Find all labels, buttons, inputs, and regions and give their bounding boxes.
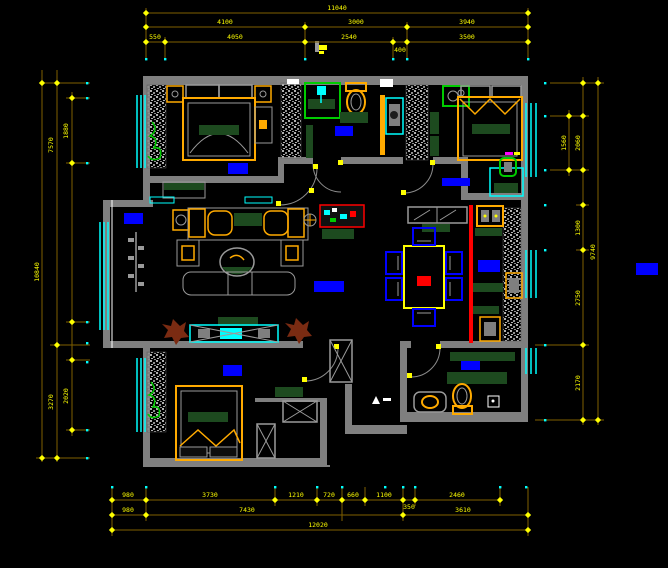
dim-text: 1880 bbox=[62, 123, 70, 139]
dim-witness-dot bbox=[86, 342, 88, 344]
dim-witness-dot bbox=[544, 249, 546, 251]
dim-text: 3270 bbox=[47, 394, 55, 410]
dim-witness-dot bbox=[406, 58, 408, 60]
dim-witness-dot bbox=[145, 58, 147, 60]
bath2-drain-dot bbox=[492, 400, 495, 403]
dim-witness-dot bbox=[414, 486, 416, 488]
dim-text: 350 bbox=[403, 503, 415, 511]
section-flag-tail bbox=[319, 51, 324, 54]
dim-witness-dot bbox=[544, 82, 546, 84]
door-hinge bbox=[407, 373, 412, 378]
dim-text: 2060 bbox=[574, 135, 582, 151]
dim-witness-dot bbox=[544, 115, 546, 117]
dim-text: 11040 bbox=[327, 4, 347, 12]
cad-viewport[interactable]: 1104041003000394055040502540400350010840… bbox=[0, 0, 668, 568]
dim-text: 1210 bbox=[288, 491, 304, 499]
decor-pixel-white bbox=[332, 208, 337, 212]
decor-pixel-cyan1 bbox=[324, 210, 330, 215]
living-plant-leaf bbox=[138, 264, 144, 268]
room-label-bedroom3 bbox=[223, 365, 242, 376]
living-plant-leaf bbox=[138, 282, 144, 286]
kitchen-appliance-body bbox=[484, 322, 496, 336]
dim-text: 4050 bbox=[227, 33, 243, 41]
door-hinge bbox=[309, 188, 314, 193]
bed3-pillow bbox=[188, 412, 228, 422]
room-label-living bbox=[314, 281, 344, 292]
dim-text: 2540 bbox=[341, 33, 357, 41]
dim-text: 1100 bbox=[376, 491, 392, 499]
dim-text: 3940 bbox=[459, 18, 475, 26]
dim-witness-dot bbox=[525, 486, 527, 488]
dim-witness-dot bbox=[164, 58, 166, 60]
closet-hatch-bath-right bbox=[406, 85, 428, 160]
dim-witness-dot bbox=[111, 486, 113, 488]
bedroom2-mark-yellow bbox=[514, 152, 520, 155]
tv-cabinet-center bbox=[220, 328, 242, 339]
room-label-kitchen bbox=[478, 260, 500, 272]
washing-machine-drum bbox=[390, 111, 398, 119]
bedroom1-dresser-knob bbox=[259, 120, 267, 129]
living-plant-leaf bbox=[128, 256, 134, 260]
sofa-cushion-green bbox=[234, 213, 262, 226]
dim-witness-dot bbox=[86, 97, 88, 99]
dim-text: 2020 bbox=[62, 388, 70, 404]
dim-text: 1560 bbox=[560, 135, 568, 151]
dim-witness-dot bbox=[499, 486, 501, 488]
bedroom2-desk-top bbox=[494, 183, 518, 193]
door-hinge bbox=[313, 164, 318, 169]
room-label-hall bbox=[442, 178, 470, 186]
floorplan-canvas[interactable]: 1104041003000394055040502540400350010840… bbox=[0, 0, 668, 568]
living-plant-leaf bbox=[128, 238, 134, 242]
closet-hatch-bedroom3 bbox=[147, 352, 166, 432]
decor-pixel-green bbox=[330, 218, 336, 222]
dim-text: 7570 bbox=[47, 137, 55, 153]
bedroom3-dresser-green bbox=[275, 387, 303, 397]
entry-marker-bar bbox=[383, 398, 391, 401]
bed2-pillow bbox=[472, 124, 510, 134]
dim-witness-dot bbox=[274, 486, 276, 488]
bath1-doorframe bbox=[380, 95, 385, 155]
dim-text: 3500 bbox=[459, 33, 475, 41]
kitchen-counter-green-1 bbox=[475, 228, 502, 236]
tv-cabinet-box-l bbox=[198, 329, 210, 338]
dim-witness-dot bbox=[86, 429, 88, 431]
bed1-pillow bbox=[199, 125, 239, 135]
dim-witness-dot bbox=[86, 82, 88, 84]
tv-cabinet-box-r bbox=[258, 329, 270, 338]
dim-text: 2170 bbox=[574, 375, 582, 391]
dim-text: 3000 bbox=[348, 18, 364, 26]
dim-text: 4100 bbox=[217, 18, 233, 26]
dim-witness-dot bbox=[316, 486, 318, 488]
door-hinge bbox=[430, 160, 435, 165]
vent-white-2 bbox=[380, 79, 393, 87]
door-hinge bbox=[276, 201, 281, 206]
dining-centerpiece bbox=[417, 276, 431, 286]
bath1-counter bbox=[340, 112, 368, 123]
bedroom2-chair-seat bbox=[504, 162, 512, 172]
wall-entry-vertical bbox=[345, 384, 352, 432]
room-label-bedroom1 bbox=[228, 163, 248, 174]
dim-text: 660 bbox=[347, 491, 359, 499]
dim-text: 3610 bbox=[455, 506, 471, 514]
dim-text: 10840 bbox=[33, 262, 41, 282]
kitchen-partition-red bbox=[469, 205, 473, 343]
kitchen-sink-basin bbox=[509, 278, 519, 293]
wall-entry-bottom bbox=[345, 425, 407, 432]
dim-text: 720 bbox=[323, 491, 335, 499]
dim-witness-dot bbox=[304, 58, 306, 60]
vent-white-1 bbox=[287, 79, 299, 84]
wall-bath2-top-a bbox=[405, 341, 411, 348]
dim-witness-dot bbox=[341, 486, 343, 488]
wall-living-top bbox=[103, 200, 153, 207]
bath1-green-column bbox=[306, 125, 313, 158]
bed3-footboard-r bbox=[210, 447, 237, 457]
dim-witness-dot bbox=[86, 162, 88, 164]
decor-base-green bbox=[322, 229, 354, 239]
wall-corridor-c bbox=[433, 157, 461, 164]
dim-witness-dot bbox=[544, 344, 546, 346]
wall-bath2-top-b bbox=[440, 341, 528, 348]
living-plant-leaf bbox=[128, 274, 134, 278]
bedroom2-mark-magenta bbox=[505, 152, 513, 155]
elevation-marker-blue bbox=[636, 263, 658, 275]
section-flag-yellow bbox=[319, 45, 327, 50]
dim-witness-dot bbox=[384, 486, 386, 488]
dim-witness-dot bbox=[527, 58, 529, 60]
bedroom2-shelf-green-a bbox=[430, 112, 439, 134]
dim-text: 2750 bbox=[574, 290, 582, 306]
shower-head bbox=[317, 86, 326, 95]
decor-pixel-red bbox=[350, 211, 356, 217]
room-label-bath2 bbox=[461, 361, 480, 370]
dim-text: 550 bbox=[149, 33, 161, 41]
bath2-vanity-green bbox=[447, 372, 507, 384]
dim-text: 2460 bbox=[449, 491, 465, 499]
dim-witness-dot bbox=[86, 361, 88, 363]
dim-text: 9740 bbox=[589, 244, 597, 260]
dim-witness-dot bbox=[544, 204, 546, 206]
dim-witness-dot bbox=[86, 457, 88, 459]
room-label-living-west bbox=[124, 213, 143, 224]
dim-witness-dot bbox=[392, 58, 394, 60]
living-plant-leaf bbox=[138, 246, 144, 250]
kitchen-counter-green-3 bbox=[473, 306, 499, 314]
wall-bath2-left bbox=[400, 341, 407, 420]
wall-bedroom3-right bbox=[320, 398, 327, 465]
closet-hatch-bedroom1 bbox=[147, 85, 166, 168]
dim-text: 7430 bbox=[239, 506, 255, 514]
dim-text: 1300 bbox=[574, 220, 582, 236]
decor-pixel-cyan2 bbox=[340, 214, 347, 219]
dim-text: 3730 bbox=[202, 491, 218, 499]
kitchen-counter-green-2 bbox=[473, 283, 503, 292]
dim-text: 400 bbox=[394, 46, 406, 54]
wall-corridor-b bbox=[341, 157, 403, 164]
closet-hatch-hall bbox=[281, 83, 301, 158]
bedroom2-shelf-green-b bbox=[430, 136, 439, 156]
dim-witness-dot bbox=[145, 486, 147, 488]
room-label-bath1 bbox=[335, 126, 353, 136]
dim-witness-dot bbox=[544, 169, 546, 171]
bath2-counter-top bbox=[450, 352, 515, 361]
door-hinge bbox=[338, 160, 343, 165]
stove-knob-r bbox=[495, 215, 498, 218]
dim-witness-dot bbox=[402, 486, 404, 488]
dim-text: 12020 bbox=[308, 521, 328, 529]
door-hinge bbox=[436, 344, 441, 349]
hall-cabinet-top bbox=[164, 183, 204, 190]
dim-witness-dot bbox=[544, 419, 546, 421]
stove-knob-l bbox=[484, 215, 487, 218]
bed3-footboard-l bbox=[180, 447, 207, 457]
dim-witness-dot bbox=[86, 321, 88, 323]
dim-text: 980 bbox=[122, 506, 134, 514]
section-flag-gray bbox=[315, 41, 319, 52]
door-hinge bbox=[302, 377, 307, 382]
dim-text: 980 bbox=[122, 491, 134, 499]
door-hinge bbox=[401, 190, 406, 195]
